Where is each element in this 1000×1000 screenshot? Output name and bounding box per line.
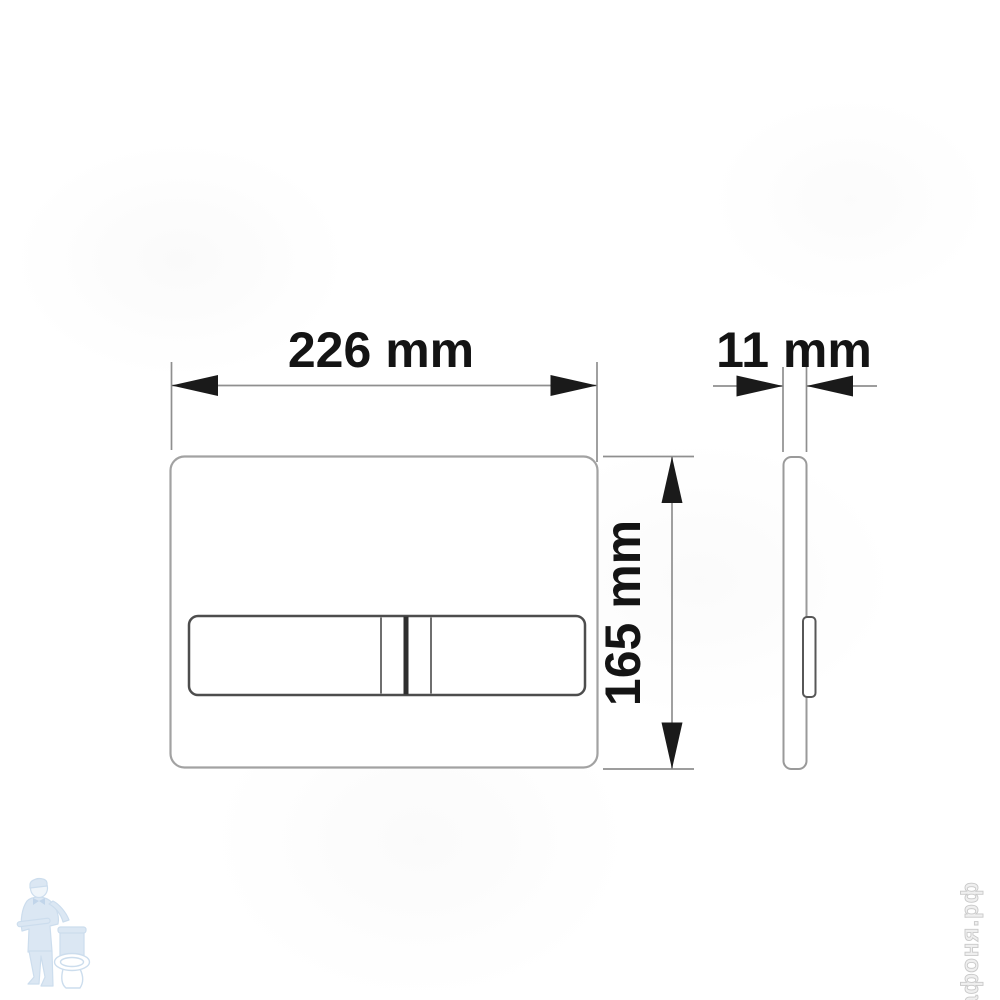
flush-plate-drawing: 226 mm 11 mm 165 mm (0, 0, 1000, 1000)
width-dimension: 226 mm (172, 322, 598, 462)
plumber-hair (30, 879, 47, 888)
side-profile-outline (784, 457, 807, 769)
depth-arrow-right-icon (737, 376, 784, 397)
width-arrow-right-icon (551, 375, 598, 396)
height-arrow-down-icon (662, 723, 683, 770)
side-view (784, 457, 816, 769)
width-dimension-label: 226 mm (288, 322, 474, 378)
site-watermark-text: афоня.рф (957, 881, 984, 1000)
depth-dimension: 11 mm (713, 322, 877, 452)
toilet-tank-lid (58, 927, 86, 933)
flush-plate-outline (171, 457, 598, 768)
plumber-logo-icon (17, 879, 90, 989)
depth-arrow-left-icon (807, 376, 854, 397)
height-arrow-up-icon (662, 457, 683, 504)
height-dimension: 165 mm (595, 457, 694, 770)
toilet-bowl-rim (61, 958, 84, 967)
front-view (171, 457, 598, 768)
toilet-pedestal (62, 969, 83, 988)
technical-drawing-page: 226 mm 11 mm 165 mm (0, 0, 1000, 1000)
depth-dimension-label: 11 mm (716, 322, 872, 378)
plumber-legs (28, 951, 53, 986)
button-bar (189, 616, 585, 695)
side-button-protrusion (803, 617, 816, 697)
height-dimension-label: 165 mm (595, 520, 651, 706)
width-arrow-left-icon (172, 375, 219, 396)
